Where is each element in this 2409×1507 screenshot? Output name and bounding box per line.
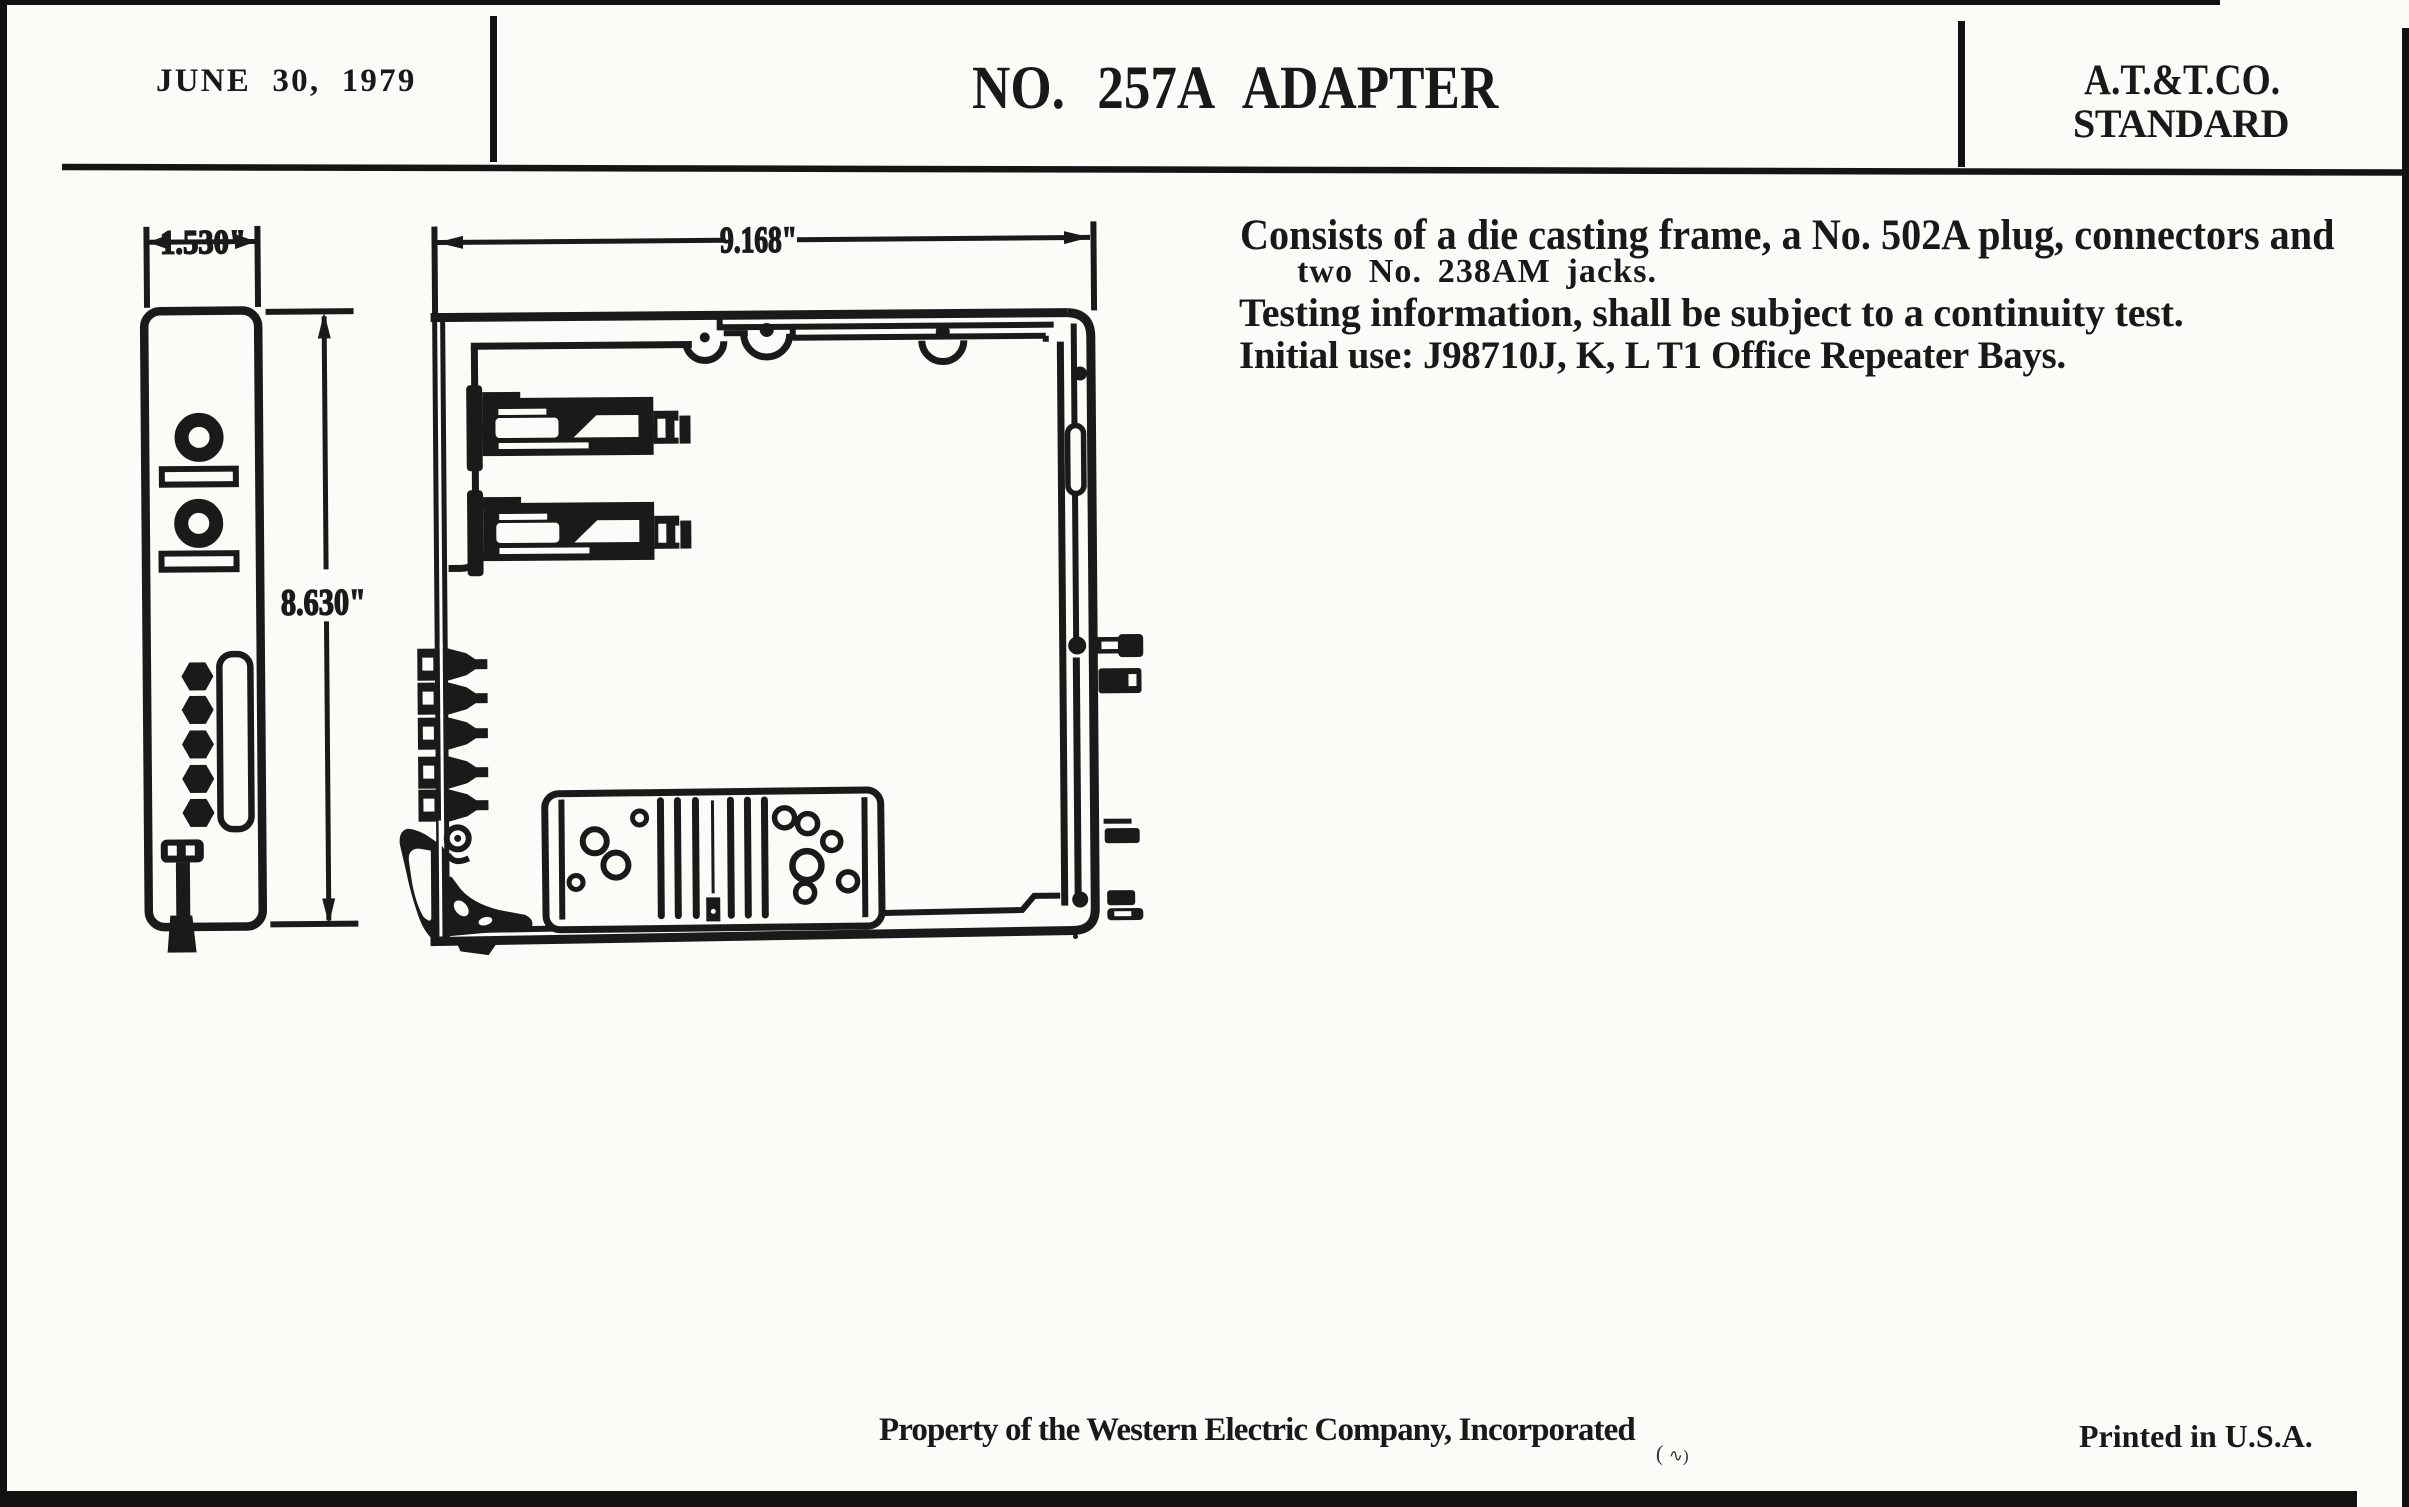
svg-text:8.630": 8.630" bbox=[281, 582, 366, 624]
svg-text:1.530": 1.530" bbox=[160, 224, 246, 262]
svg-text:9.168": 9.168" bbox=[720, 220, 797, 262]
